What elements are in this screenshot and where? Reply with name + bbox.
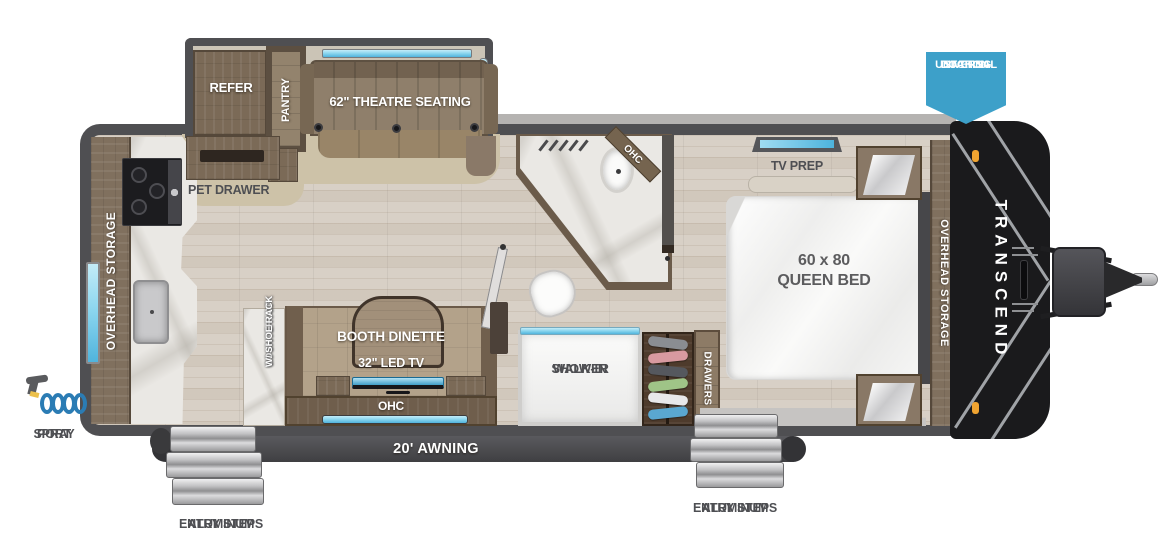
badge-line3: STATION	[943, 59, 988, 72]
range-knobs	[168, 160, 181, 224]
cupholder-icon	[314, 123, 323, 132]
door-hinge-icon	[500, 244, 506, 250]
cupholder-icon	[392, 124, 401, 133]
dinette-cabinet	[316, 376, 350, 396]
bathroom-wall	[662, 135, 674, 253]
marker-light-icon	[972, 150, 979, 162]
walk-in-shower-label: WALK-IN SHOWER	[520, 352, 640, 386]
tv-icon	[352, 377, 444, 389]
step-hinge	[150, 428, 172, 454]
theatre-seating-label: 62" THEATRE SEATING	[312, 92, 488, 110]
cupholder-icon	[470, 123, 479, 132]
pet-drawer-label: PET DRAWER	[188, 182, 288, 198]
dinette-bench	[287, 306, 303, 398]
nightstand-top	[856, 146, 922, 200]
dinette-window	[322, 415, 468, 424]
rv-floorplan: REFER PANTRY 62" THEATRE SEATING OVERHEA…	[0, 0, 1159, 560]
tv-stand-icon	[386, 391, 410, 394]
spray-port-label: SPRAY PORT	[16, 418, 92, 450]
tv-prep-label: TV PREP	[752, 158, 842, 173]
kitchen-sink	[133, 280, 169, 344]
hitch-coupler	[1104, 260, 1142, 300]
pet-drawer-slot	[200, 150, 264, 162]
kitchen-window	[86, 262, 100, 364]
awning-label: 20' AWNING	[356, 440, 516, 458]
brand-label: TRANSCEND	[950, 121, 1050, 439]
entry-step	[170, 426, 256, 452]
burner-icon	[149, 183, 165, 199]
spray-hose-coil-icon	[73, 393, 87, 414]
theatre-footrest	[318, 130, 482, 158]
booth-dinette-label: BOOTH DINETTE	[300, 328, 482, 344]
entry-steps-left-label: ALUMINUM ENTRY STEPS	[150, 508, 292, 540]
slideout-window	[322, 49, 472, 58]
shower-glass	[520, 327, 640, 335]
nightstand-bottom	[856, 374, 922, 426]
bed-size-label: 60 x 80	[726, 252, 922, 270]
shower-label-line2: SHOWER	[551, 361, 608, 377]
spray-label-line2: PORT	[37, 427, 71, 442]
bed-fold	[726, 196, 756, 240]
entry-step	[690, 438, 782, 462]
entry-step	[172, 478, 264, 505]
dinette-cabinet	[446, 376, 486, 396]
towel-rack-icon	[540, 138, 592, 154]
burner-icon	[131, 167, 147, 183]
tv-prep-screen	[760, 140, 834, 148]
theatre-armrest-front	[466, 136, 496, 176]
countertop-shoe-rack-label: COUNTERTOP W/ SHOE RACK	[243, 308, 285, 426]
burner-icon	[131, 199, 147, 215]
dinette-ohc-label: OHC	[350, 399, 432, 413]
countertop-label-line2: W/ SHOE RACK	[264, 296, 275, 367]
bed-type-label: QUEEN BED	[726, 272, 922, 290]
bathroom-wall-post	[490, 302, 508, 354]
entry-step	[696, 462, 784, 488]
refer-label: REFER	[196, 78, 266, 96]
marker-light-icon	[972, 402, 979, 414]
steps-label-line2: ENTRY STEPS	[693, 501, 777, 516]
spray-port-band-icon	[30, 391, 40, 398]
entry-steps-right-label: ALUMINUM ENTRY STEPS	[662, 492, 808, 524]
led-tv-label: 32" LED TV	[318, 355, 464, 370]
entry-step	[694, 414, 778, 438]
entry-step	[166, 452, 262, 478]
steps-label-line2: ENTRY STEPS	[179, 517, 263, 532]
door-knob-icon	[665, 256, 670, 261]
propane-cover	[1052, 247, 1106, 317]
bedroom-dresser	[748, 176, 858, 193]
